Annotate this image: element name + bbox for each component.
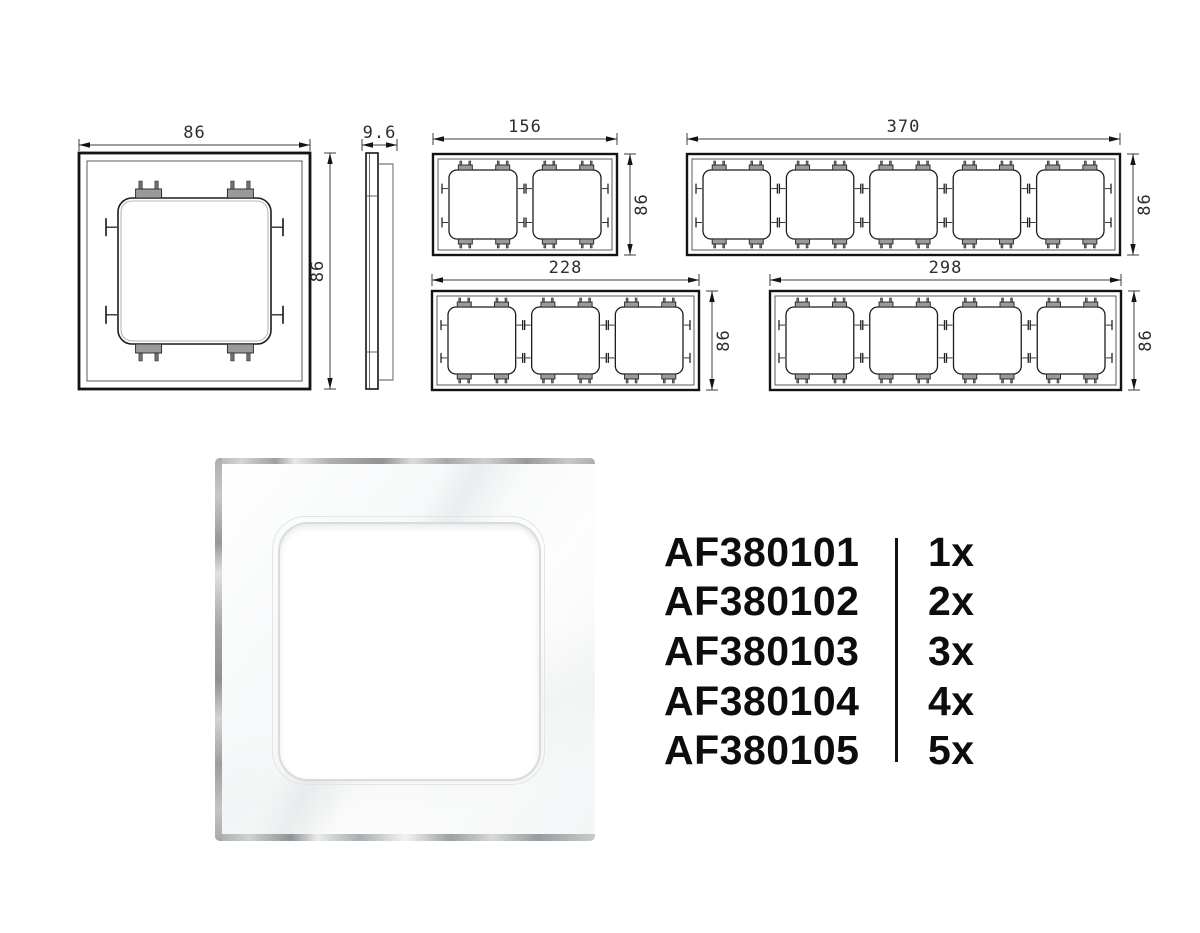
drawing-frame-1gang-front: 8686: [79, 123, 336, 389]
product-render-1gang-frame: [215, 458, 595, 841]
dimension-label: 86: [1136, 329, 1156, 351]
dimension-label: 86: [183, 123, 205, 143]
technical-drawings-svg: 86869.615686370862288629886: [0, 0, 1200, 432]
product-quantity: 4x: [928, 677, 975, 726]
drawing-frame-3gang-front: 22886: [432, 258, 734, 390]
product-quantity: 5x: [928, 726, 975, 775]
product-code: AF380103: [664, 627, 859, 676]
product-list: AF380101 1x AF380102 2x AF380103 3x AF38…: [664, 528, 1009, 773]
frame-opening: [278, 522, 541, 781]
dimension-label: 9.6: [363, 123, 397, 143]
dimension-label: 86: [632, 193, 652, 215]
dimension-label: 370: [887, 117, 921, 137]
product-code: AF380104: [664, 677, 859, 726]
dimension-label: 156: [508, 117, 542, 137]
glass-edge-bottom: [215, 834, 595, 841]
product-quantity: 2x: [928, 577, 975, 626]
glass-edge-left: [215, 458, 222, 841]
product-list-divider: [895, 538, 898, 762]
product-quantity: 3x: [928, 627, 975, 676]
product-quantity: 1x: [928, 528, 975, 577]
dimension-label: 86: [308, 260, 328, 282]
drawing-frame-5gang-front: 37086: [687, 117, 1155, 255]
dimension-label: 298: [929, 258, 963, 278]
product-code: AF380101: [664, 528, 859, 577]
product-code: AF380105: [664, 726, 859, 775]
product-code: AF380102: [664, 577, 859, 626]
dimension-label: 228: [549, 258, 583, 278]
glass-edge-top: [215, 458, 595, 464]
glass-edge-right: [589, 458, 595, 841]
drawing-frame-2gang-front: 15686: [433, 117, 652, 255]
drawing-frame-side-profile: 9.6: [362, 123, 397, 389]
drawing-frame-4gang-front: 29886: [770, 258, 1156, 390]
dimension-label: 86: [1135, 193, 1155, 215]
dimension-label: 86: [714, 329, 734, 351]
product-spec-sheet: 86869.615686370862288629886 AF380101 1x …: [0, 0, 1200, 933]
